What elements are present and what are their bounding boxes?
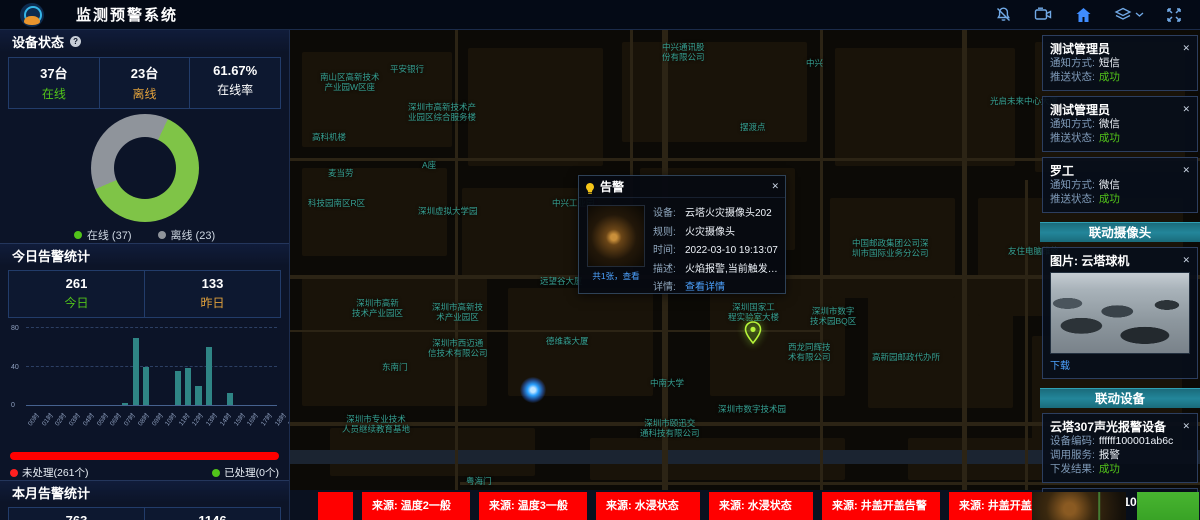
ticker-item[interactable]: 来源: 水浸状态 xyxy=(709,492,813,520)
device-card: 云塔307声光报警设备设备编码:ffffff100001ab6c调用服务:报警下… xyxy=(1042,413,1198,483)
popup-field: 时间:2022-03-10 19:13:07 xyxy=(653,242,779,261)
bar-slot xyxy=(172,328,182,405)
camera-snapshot[interactable] xyxy=(1050,272,1190,354)
map-road xyxy=(290,330,820,332)
card-row: 推送状态:成功 xyxy=(1050,131,1190,145)
map-label: 中国邮政集团公司深 圳市国际业务分公司 xyxy=(852,238,929,258)
donut-legend: 在线 (37)离线 (23) xyxy=(0,227,289,243)
map-label: 中南大学 xyxy=(650,378,684,388)
card-row: 下发结果:成功 xyxy=(1050,462,1190,476)
card-header: 测试管理员 xyxy=(1050,101,1190,117)
card-header: 测试管理员 xyxy=(1050,40,1190,56)
card-header: 罗工 xyxy=(1050,162,1190,178)
row-label: 通知方式: xyxy=(1050,178,1095,192)
x-axis-tick: 00时 xyxy=(25,411,41,428)
alert-popup-title: 告警 xyxy=(600,178,771,195)
stat-value: 261 xyxy=(9,276,144,291)
fullscreen-icon[interactable] xyxy=(1166,7,1182,23)
bar-slot xyxy=(162,328,172,405)
stat-cell: 261今日 xyxy=(9,271,144,317)
stat-label: 离线 xyxy=(100,85,190,102)
map-block xyxy=(468,48,603,166)
home-icon[interactable] xyxy=(1075,7,1092,23)
bar-slot xyxy=(204,328,214,405)
map-label: 东南门 xyxy=(382,362,408,372)
camera-section-header: 联动摄像头 xyxy=(1040,222,1200,242)
map-label: 深圳市专业技术 人员继续教育基地 xyxy=(342,414,410,434)
help-icon[interactable] xyxy=(70,36,81,47)
map-road xyxy=(962,30,967,490)
bar-slot xyxy=(193,328,203,405)
row-label: 调用服务: xyxy=(1050,448,1095,462)
map-device-dot[interactable] xyxy=(520,377,546,403)
stat-value: 61.67% xyxy=(190,63,280,78)
unprocessed-progress-bar xyxy=(10,452,279,460)
map-label: 高新园邮政代办所 xyxy=(872,352,940,362)
row-value: 报警 xyxy=(1099,448,1120,462)
camera-card-title: 图片: 云塔球机 xyxy=(1050,252,1182,269)
map-label: 深圳虚拟大学园 xyxy=(418,206,478,216)
row-label: 设备编码: xyxy=(1050,434,1095,448)
bar-slot xyxy=(214,328,224,405)
bar-slot xyxy=(89,328,99,405)
map-label: 深圳市数字技术园 xyxy=(718,404,786,414)
map-label: 远望谷大厦 xyxy=(540,276,583,286)
map-pin-icon[interactable] xyxy=(742,320,764,346)
stat-cell: 763 xyxy=(9,508,144,520)
field-label: 描述: xyxy=(653,261,685,280)
x-axis-tick: 07时 xyxy=(121,411,137,428)
alert-popup: 告警 共1张，查看 设备:云塔火灾摄像头202规则:火灾摄像头时间:2022-0… xyxy=(578,175,786,294)
x-axis-tick: 17时 xyxy=(258,411,274,428)
chevron-down-icon xyxy=(1135,11,1144,18)
alert-popup-header: 告警 xyxy=(579,176,785,198)
map-label: 中兴通讯股 份有限公司 xyxy=(662,42,705,62)
stat-cell: 61.67%在线率 xyxy=(189,58,280,108)
map-label: 科技园南区R区 xyxy=(308,198,365,208)
map-label: 平安银行 xyxy=(390,64,424,74)
processed-label: 已处理(0个) xyxy=(224,465,279,480)
field-value: 云塔火灾摄像头202 xyxy=(685,205,772,224)
chart-plot: 04080 xyxy=(26,328,277,406)
bar-slot xyxy=(57,328,67,405)
map-block xyxy=(622,42,807,142)
card-row: 通知方式:短信 xyxy=(1050,56,1190,70)
device-section-header: 联动设备 xyxy=(1040,388,1200,408)
row-label: 推送状态: xyxy=(1050,192,1095,206)
x-axis-labels: 00时01时02时03时04时05时06时07时08时09时10时11时12时1… xyxy=(26,408,277,424)
map-road xyxy=(1025,180,1028,490)
ticker-item[interactable]: 来源: 井盖开盖告警 xyxy=(949,492,1032,520)
card-row: 通知方式:微信 xyxy=(1050,117,1190,131)
row-label: 通知方式: xyxy=(1050,56,1095,70)
header-icons xyxy=(995,6,1182,23)
layers-icon[interactable] xyxy=(1114,7,1144,23)
field-value: 2022-03-10 19:13:07 xyxy=(685,242,778,261)
stat-label: 今日 xyxy=(9,294,144,311)
top-bar: 监测预警系统 xyxy=(0,0,1200,30)
bar xyxy=(206,347,212,405)
bar xyxy=(175,371,181,405)
alert-popup-body: 共1张，查看 设备:云塔火灾摄像头202规则:火灾摄像头时间:2022-03-1… xyxy=(579,198,785,302)
popup-field: 详情:查看详情 xyxy=(653,279,779,298)
download-link[interactable]: 下载 xyxy=(1050,357,1190,372)
field-label: 规则: xyxy=(653,224,685,243)
card-title: 测试管理员 xyxy=(1050,40,1182,57)
device-status-section: 设备状态 37台在线23台离线61.67%在线率 在线 (37)离线 (23) xyxy=(0,30,289,243)
alert-bulb-icon xyxy=(585,182,595,192)
device-status-stats: 37台在线23台离线61.67%在线率 xyxy=(8,57,281,109)
y-axis-tick: 0 xyxy=(11,402,15,409)
map-label: 中兴 xyxy=(806,58,823,68)
bar-slot xyxy=(266,328,276,405)
stat-value: 23台 xyxy=(100,63,190,82)
card-row: 设备编码:ffffff100001ab6c xyxy=(1050,434,1190,448)
row-value: 微信 xyxy=(1099,178,1120,192)
bar xyxy=(143,367,149,406)
field-label: 设备: xyxy=(653,205,685,224)
today-alerts-section: 今日告警统计 261今日133昨日 0408000时01时02时03时04时05… xyxy=(0,243,289,480)
notifications-muted-icon[interactable] xyxy=(995,6,1012,23)
bar-slot xyxy=(26,328,36,405)
popup-field: 规则:火灾摄像头 xyxy=(653,224,779,243)
alert-snapshot-wrap: 共1张，查看 xyxy=(587,205,645,298)
map-road xyxy=(820,30,823,490)
field-label: 详情: xyxy=(653,279,685,298)
legend-dot xyxy=(74,231,82,239)
x-axis-tick: 14时 xyxy=(216,411,232,428)
close-icon[interactable] xyxy=(1182,422,1190,431)
notification-card: 测试管理员通知方式:短信推送状态:成功 xyxy=(1042,35,1198,91)
map-label: 南山区高新技术 产业园W区座 xyxy=(320,72,380,92)
stat-cell: 37台在线 xyxy=(9,58,99,108)
notification-list: 测试管理员通知方式:短信推送状态:成功测试管理员通知方式:微信推送状态:成功罗工… xyxy=(1040,35,1200,213)
map-label: 深圳市高新 技术产业园区 xyxy=(352,298,403,318)
stat-cell: 23台离线 xyxy=(99,58,190,108)
map-label: 麦当劳 xyxy=(328,168,354,178)
processed-dot xyxy=(212,469,220,477)
bar-slot xyxy=(36,328,46,405)
close-icon[interactable] xyxy=(771,182,779,191)
field-label: 时间: xyxy=(653,242,685,261)
row-label: 推送状态: xyxy=(1050,70,1095,84)
bar-slot xyxy=(110,328,120,405)
today-alerts-stats: 261今日133昨日 xyxy=(8,270,281,318)
x-axis-tick: 04时 xyxy=(80,411,96,428)
stat-value: 37台 xyxy=(9,63,99,82)
detail-link[interactable]: 查看详情 xyxy=(685,279,725,298)
map-label: 西龙同辉技 术有限公司 xyxy=(788,342,831,362)
snapshot-view-link[interactable]: 共1张，查看 xyxy=(587,270,645,282)
row-value: 成功 xyxy=(1099,70,1120,84)
x-axis-tick: 13时 xyxy=(203,411,219,428)
bar xyxy=(122,403,128,405)
alert-ticker: 来源: 温度2一般来源: 温度3一般来源: 水浸状态来源: 水浸状态来源: 井盖… xyxy=(290,490,1032,520)
bar xyxy=(185,368,191,405)
bar-slot xyxy=(225,328,235,405)
bar-slot xyxy=(256,328,266,405)
row-value: 成功 xyxy=(1099,131,1120,145)
bar-slot xyxy=(141,328,151,405)
map-block xyxy=(835,48,1015,166)
notification-card: 测试管理员通知方式:微信推送状态:成功 xyxy=(1042,96,1198,152)
row-label: 通知方式: xyxy=(1050,117,1095,131)
bar-slot xyxy=(78,328,88,405)
bar xyxy=(195,386,201,405)
bar-slot xyxy=(68,328,78,405)
y-axis-tick: 40 xyxy=(11,364,19,371)
device-status-header: 设备状态 xyxy=(0,30,289,53)
row-value: 成功 xyxy=(1099,462,1120,476)
ticker-item[interactable]: 来源: 温度3一般 xyxy=(479,492,587,520)
device-status-title: 设备状态 xyxy=(12,32,64,51)
unprocessed-label: 未处理(261个) xyxy=(22,465,89,480)
ticker-item[interactable]: 来源: 井盖开盖告警 xyxy=(822,492,940,520)
x-axis-tick: 08时 xyxy=(134,411,150,428)
map-label: 深圳市数字 技术园BQ区 xyxy=(810,306,856,326)
video-camera-icon[interactable] xyxy=(1034,7,1053,22)
month-alerts-stats: 7631146 xyxy=(8,507,281,520)
legend-label: 在线 (37) xyxy=(87,227,132,243)
field-value: 火焰报警,当前触发值为... xyxy=(685,261,779,280)
right-panel: 测试管理员通知方式:短信推送状态:成功测试管理员通知方式:微信推送状态:成功罗工… xyxy=(1040,30,1200,520)
donut-wrap xyxy=(0,109,289,227)
ticker-item[interactable]: 来源: 温度2一般 xyxy=(362,492,470,520)
bar-slot xyxy=(47,328,57,405)
stat-value: 133 xyxy=(145,276,280,291)
card-header: 云塔307声光报警设备 xyxy=(1050,418,1190,434)
row-value: 微信 xyxy=(1099,117,1120,131)
popup-field: 描述:火焰报警,当前触发值为... xyxy=(653,261,779,280)
month-alerts-section: 本月告警统计 7631146 xyxy=(0,480,289,520)
legend-item: 在线 (37) xyxy=(74,227,132,243)
map-label: 深圳市颐迅交 通科技有限公司 xyxy=(640,418,700,438)
map-label: 高科机楼 xyxy=(312,132,346,142)
device-status-donut-chart xyxy=(91,114,199,222)
stat-cell: 1146 xyxy=(144,508,280,520)
unprocessed-dot xyxy=(10,469,18,477)
today-alerts-header: 今日告警统计 xyxy=(0,243,289,266)
snapshot-thumbnail-green[interactable] xyxy=(1137,492,1199,520)
map-label: A座 xyxy=(422,160,436,170)
row-label: 下发结果: xyxy=(1050,462,1095,476)
map-label: 摆渡点 xyxy=(740,122,766,132)
close-icon[interactable] xyxy=(1182,256,1190,265)
popup-field: 设备:云塔火灾摄像头202 xyxy=(653,205,779,224)
bar-slot xyxy=(246,328,256,405)
close-icon[interactable] xyxy=(1182,166,1190,175)
snapshot-thumbnail-fire[interactable] xyxy=(1032,492,1126,520)
stat-value: 763 xyxy=(9,513,144,520)
bar-slot xyxy=(183,328,193,405)
stat-cell: 133昨日 xyxy=(144,271,280,317)
stat-value: 1146 xyxy=(145,513,280,520)
map-label: 深圳市西迈通 信技术有限公司 xyxy=(428,338,488,358)
stat-label: 昨日 xyxy=(145,294,280,311)
month-alerts-header: 本月告警统计 xyxy=(0,480,289,503)
map-road xyxy=(455,30,458,490)
card-row: 通知方式:微信 xyxy=(1050,178,1190,192)
app-root: 监测预警系统 中兴通讯股 份有限公司中兴平安银行南山区高新技术 产业园W区座光启… xyxy=(0,0,1200,520)
bar xyxy=(227,393,233,406)
map-label: 深圳市高新技 术产业园区 xyxy=(432,302,483,322)
map-label: 德维森大厦 xyxy=(546,336,589,346)
close-icon[interactable] xyxy=(1182,105,1190,114)
alert-snapshot[interactable] xyxy=(587,205,645,267)
legend-label: 离线 (23) xyxy=(171,227,216,243)
notification-card: 罗工通知方式:微信推送状态:成功 xyxy=(1042,157,1198,213)
row-value: ffffff100001ab6c xyxy=(1099,434,1173,448)
row-label: 推送状态: xyxy=(1050,131,1095,145)
hourly-alerts-bar-chart: 0408000时01时02时03时04时05时06时07时08时09时10时11… xyxy=(10,324,279,446)
unprocessed-legend-item: 未处理(261个) xyxy=(10,465,89,480)
today-alerts-title: 今日告警统计 xyxy=(12,246,90,265)
stat-label: 在线 xyxy=(9,85,99,102)
card-title: 云塔307声光报警设备 xyxy=(1050,418,1182,435)
row-value: 短信 xyxy=(1099,56,1120,70)
app-logo-icon xyxy=(20,3,44,27)
map-label: 深圳市高新技术产 业园区综合服务楼 xyxy=(408,102,476,122)
camera-card: 图片: 云塔球机 下载 xyxy=(1042,247,1198,379)
bar-slot xyxy=(120,328,130,405)
legend-item: 离线 (23) xyxy=(158,227,216,243)
bar-slot xyxy=(235,328,245,405)
app-title: 监测预警系统 xyxy=(76,4,178,25)
alert-popup-fields: 设备:云塔火灾摄像头202规则:火灾摄像头时间:2022-03-10 19:13… xyxy=(653,205,779,298)
left-panel: 设备状态 37台在线23台离线61.67%在线率 在线 (37)离线 (23) … xyxy=(0,30,290,520)
map-label: 粤海门 xyxy=(466,476,492,486)
field-value: 火灾摄像头 xyxy=(685,224,735,243)
card-row: 推送状态:成功 xyxy=(1050,192,1190,206)
processed-legend-item: 已处理(0个) xyxy=(212,465,279,480)
bar-slot xyxy=(99,328,109,405)
snapshot-thumbnails xyxy=(1032,492,1199,520)
month-alerts-title: 本月告警统计 xyxy=(12,483,90,502)
card-title: 测试管理员 xyxy=(1050,101,1182,118)
row-value: 成功 xyxy=(1099,192,1120,206)
bar xyxy=(133,338,139,405)
y-axis-tick: 80 xyxy=(11,325,19,332)
close-icon[interactable] xyxy=(1182,44,1190,53)
card-row: 调用服务:报警 xyxy=(1050,448,1190,462)
bars-row xyxy=(26,328,277,405)
camera-card-header: 图片: 云塔球机 xyxy=(1050,252,1190,268)
x-axis-tick: 19时 xyxy=(285,411,290,428)
card-row: 推送状态:成功 xyxy=(1050,70,1190,84)
legend-dot xyxy=(158,231,166,239)
bar-slot xyxy=(131,328,141,405)
ticker-item[interactable]: 来源: 水浸状态 xyxy=(596,492,700,520)
card-title: 罗工 xyxy=(1050,162,1182,179)
bar-slot xyxy=(151,328,161,405)
processing-legend: 未处理(261个) 已处理(0个) xyxy=(10,465,279,480)
ticker-item[interactable] xyxy=(318,492,353,520)
stat-label: 在线率 xyxy=(190,81,280,98)
map-label: 深圳国家工 程实验室大楼 xyxy=(728,302,779,322)
